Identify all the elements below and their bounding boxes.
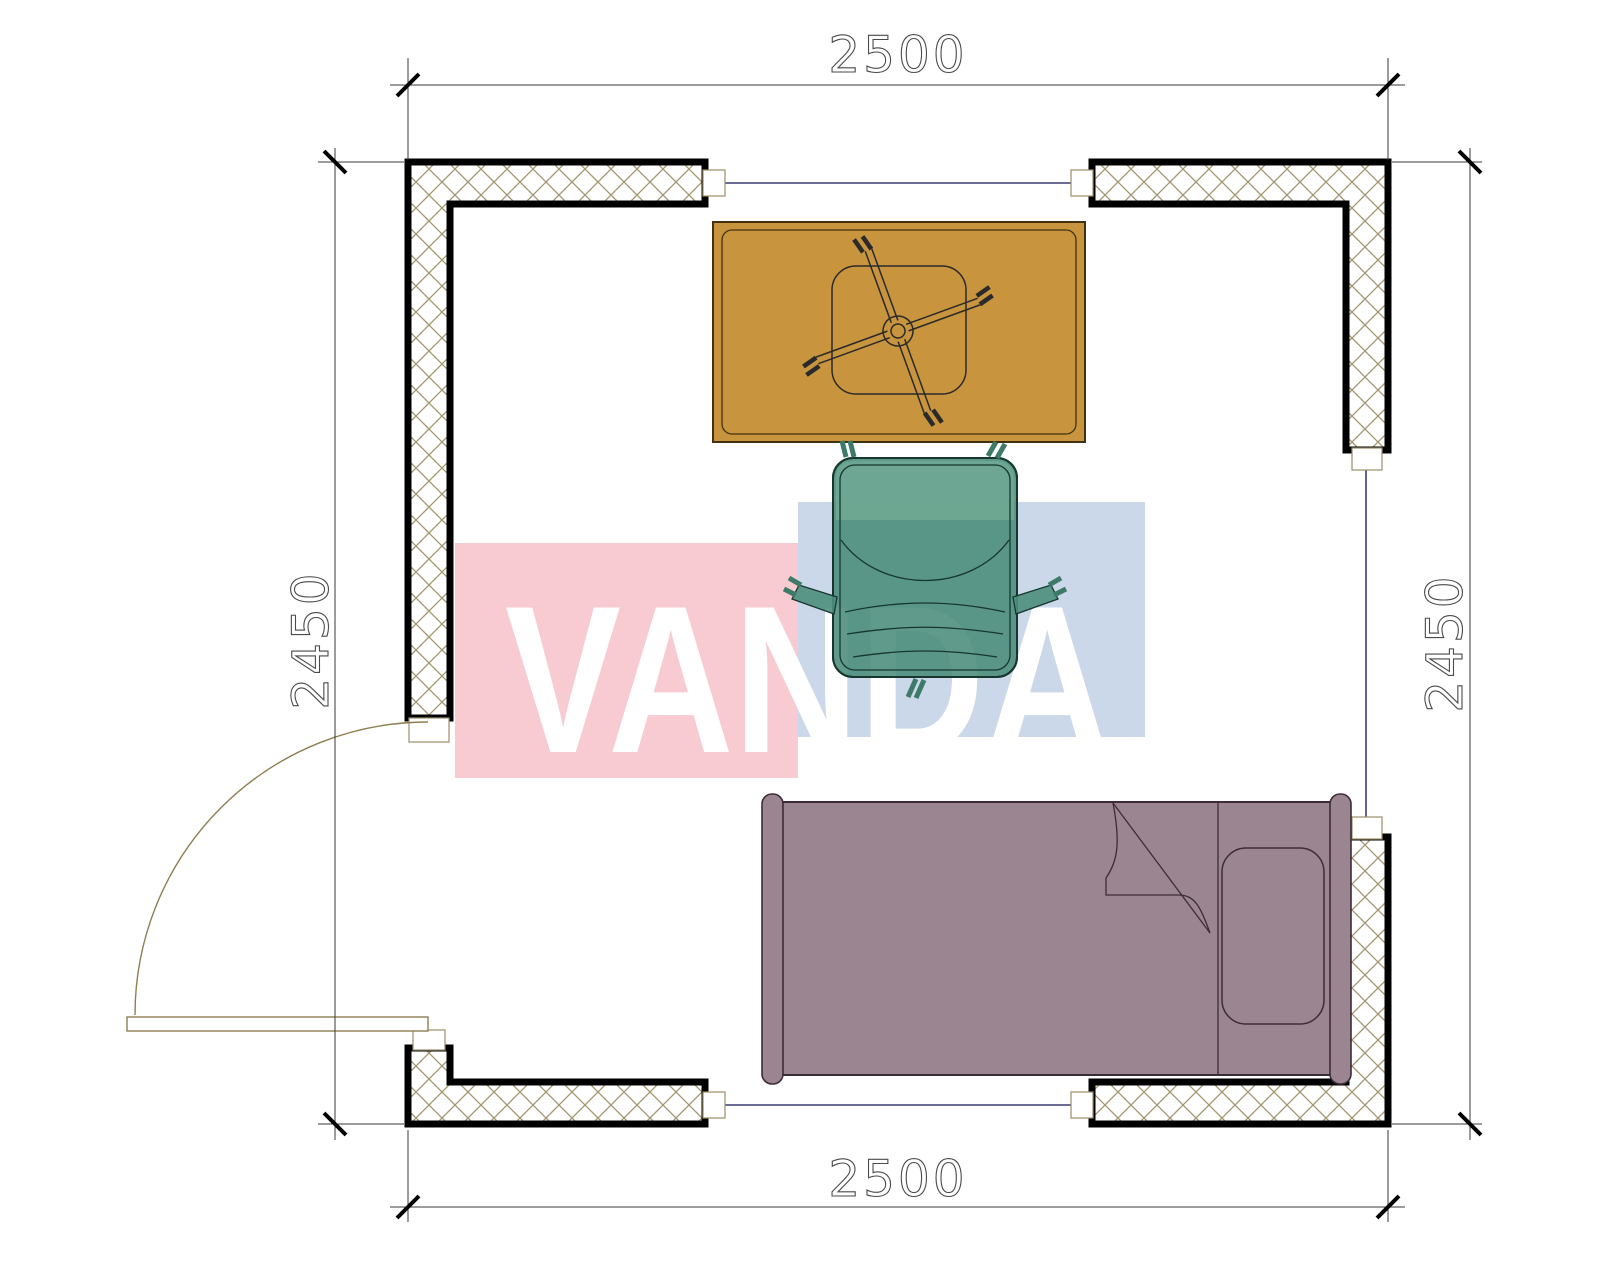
window-jamb <box>1352 448 1382 470</box>
window-jamb <box>1071 170 1093 196</box>
bed-footboard <box>762 794 783 1084</box>
pillow <box>1222 848 1324 1024</box>
chair-caster-top-left <box>842 441 854 457</box>
door <box>127 718 449 1050</box>
bed-headboard <box>1330 794 1351 1084</box>
window-jamb <box>703 170 725 196</box>
door-jamb-bottom <box>413 1030 445 1050</box>
dimension-label-top: 2500 <box>828 26 967 84</box>
desk <box>713 202 1085 461</box>
window-jamb <box>1352 817 1382 839</box>
watermark: VANDA <box>455 502 1145 797</box>
door-swing-arc <box>135 722 428 1015</box>
desk-top <box>713 222 1085 442</box>
dimension-label-right: 2450 <box>1416 573 1474 712</box>
wall-top-right <box>1092 162 1388 450</box>
window-jamb <box>703 1092 725 1118</box>
window-jamb <box>1071 1092 1093 1118</box>
bed <box>762 794 1351 1084</box>
door-leaf <box>127 1017 428 1031</box>
chair-caster-top-right <box>988 442 1005 458</box>
wall-bottom-left <box>408 1048 705 1124</box>
dimension-label-bottom: 2500 <box>828 1150 967 1208</box>
floor-plan-page: 2500 2500 2450 2450 VANDA <box>0 0 1600 1280</box>
chair-backrest-top <box>836 461 1014 520</box>
dimension-label-left: 2450 <box>282 570 340 709</box>
floor-plan-canvas: 2500 2500 2450 2450 VANDA <box>0 0 1600 1280</box>
